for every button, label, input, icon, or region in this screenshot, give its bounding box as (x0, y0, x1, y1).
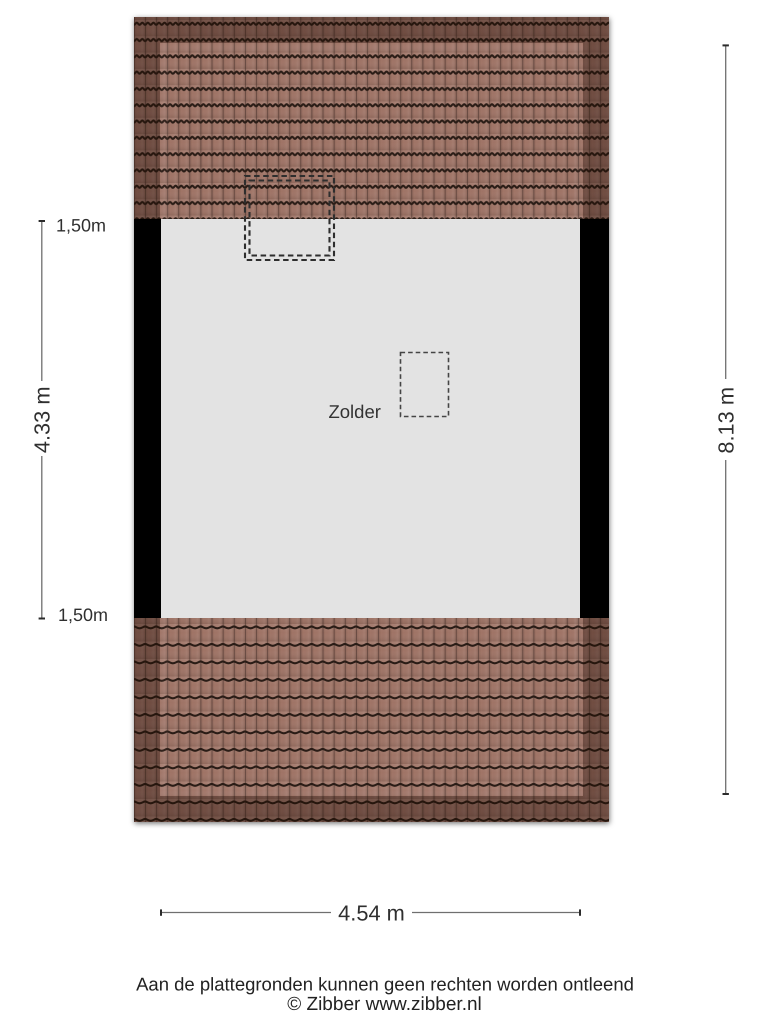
svg-text:8.13 m: 8.13 m (714, 387, 739, 454)
svg-text:4.33 m: 4.33 m (30, 386, 55, 453)
svg-text:1,50m: 1,50m (58, 605, 108, 625)
svg-text:© Zibber www.zibber.nl: © Zibber www.zibber.nl (287, 994, 482, 1015)
svg-text:Aan de plattegronden kunnen ge: Aan de plattegronden kunnen geen rechten… (136, 973, 634, 994)
svg-text:Zolder: Zolder (328, 401, 380, 422)
svg-text:4.54 m: 4.54 m (338, 901, 405, 926)
svg-text:1,50m: 1,50m (56, 216, 106, 236)
